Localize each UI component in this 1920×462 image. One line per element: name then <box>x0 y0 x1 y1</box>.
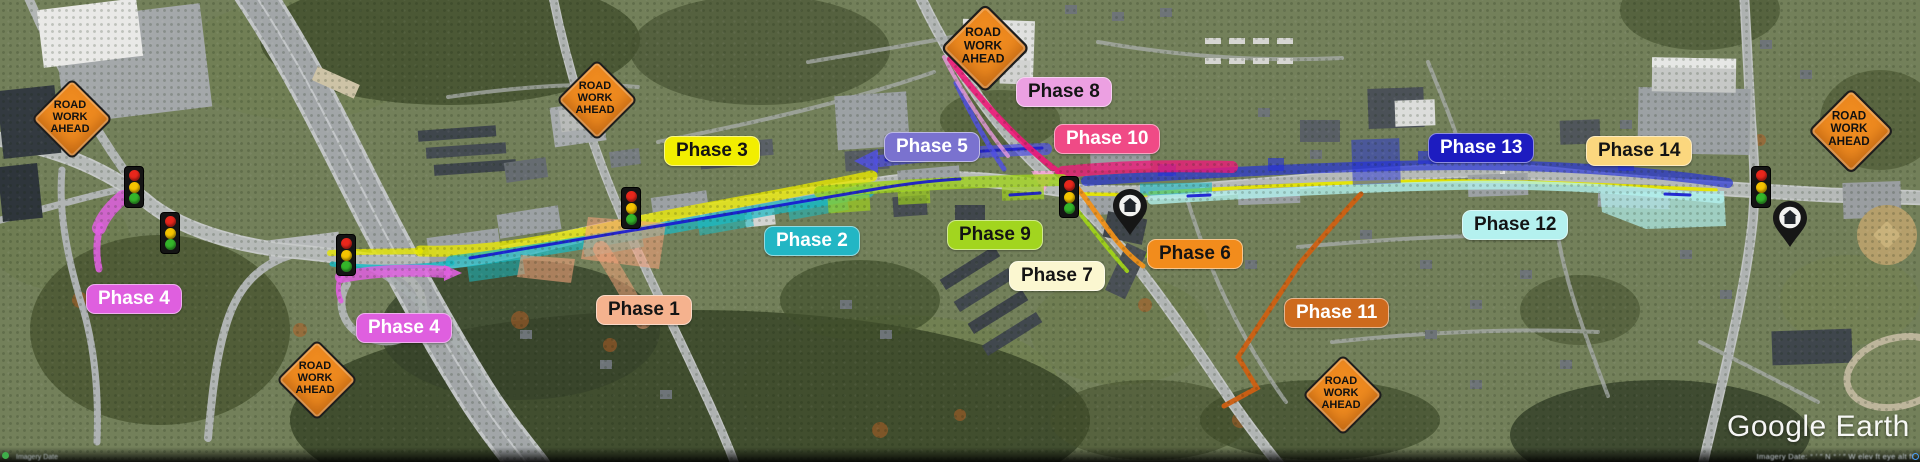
phase-4-label: Phase 4 <box>86 284 182 314</box>
status-bar: Imagery Date Imagery Date: ° ′ ″ N ° ′ ″… <box>0 447 1920 462</box>
sign-text: ROAD WORK AHEAD <box>277 340 353 416</box>
phase-13-label: Phase 13 <box>1428 133 1534 163</box>
sign-text: ROAD WORK AHEAD <box>557 60 633 136</box>
sign-text: ROAD WORK AHEAD <box>1809 89 1890 170</box>
phase-6-label: Phase 6 <box>1147 239 1243 269</box>
red-light <box>165 216 176 227</box>
status-right-text: Imagery Date: ° ′ ″ N ° ′ ″ W elev ft ey… <box>1757 452 1914 461</box>
green-light <box>1756 193 1767 204</box>
yellow-light <box>341 250 352 261</box>
red-light <box>626 191 637 202</box>
red-light <box>1064 180 1075 191</box>
road-work-ahead-sign: ROAD WORK AHEAD <box>557 60 633 136</box>
road-work-ahead-sign: ROAD WORK AHEAD <box>941 4 1025 88</box>
green-light <box>129 193 140 204</box>
phase-9-label: Phase 9 <box>947 220 1043 250</box>
road-work-ahead-sign: ROAD WORK AHEAD <box>32 79 108 155</box>
traffic-light-icon <box>1059 176 1079 218</box>
traffic-light-icon <box>1751 166 1771 208</box>
red-light <box>341 238 352 249</box>
traffic-light-icon <box>124 166 144 208</box>
status-icon <box>2 452 9 459</box>
placemark-pin-icon[interactable] <box>1772 200 1808 248</box>
google-earth-watermark: Google Earth <box>1727 410 1910 444</box>
yellow-light <box>626 203 637 214</box>
phase-4-label: Phase 4 <box>356 313 452 343</box>
green-light <box>1064 203 1075 214</box>
phase-1-label: Phase 1 <box>596 295 692 325</box>
green-light <box>626 214 637 225</box>
phase-12-label: Phase 12 <box>1462 210 1568 240</box>
phase-8-label: Phase 8 <box>1016 77 1112 107</box>
traffic-light-icon <box>336 234 356 276</box>
red-light <box>129 170 140 181</box>
status-left-text: Imagery Date <box>16 454 58 461</box>
sign-text: ROAD WORK AHEAD <box>941 4 1025 88</box>
yellow-light <box>1756 182 1767 193</box>
traffic-light-icon <box>621 187 641 229</box>
phase-5-label: Phase 5 <box>884 132 980 162</box>
phase-7-label: Phase 7 <box>1009 261 1105 291</box>
road-work-ahead-sign: ROAD WORK AHEAD <box>1809 89 1890 170</box>
traffic-light-icon <box>160 212 180 254</box>
green-light <box>341 261 352 272</box>
phase-3-label: Phase 3 <box>664 136 760 166</box>
status-compass-icon <box>1912 453 1919 460</box>
yellow-light <box>129 182 140 193</box>
sign-text: ROAD WORK AHEAD <box>1303 355 1379 431</box>
phase-11-label: Phase 11 <box>1284 298 1389 328</box>
sign-text: ROAD WORK AHEAD <box>32 79 108 155</box>
phase-10-label: Phase 10 <box>1054 124 1160 154</box>
green-light <box>165 239 176 250</box>
google-earth-view[interactable]: ROAD WORK AHEAD ROAD WORK AHEAD ROAD WOR… <box>0 0 1920 462</box>
yellow-light <box>165 228 176 239</box>
phase-14-label: Phase 14 <box>1586 136 1692 166</box>
road-work-ahead-sign: ROAD WORK AHEAD <box>1303 355 1379 431</box>
red-light <box>1756 170 1767 181</box>
placemark-pin-icon[interactable] <box>1112 188 1148 236</box>
road-work-ahead-sign: ROAD WORK AHEAD <box>277 340 353 416</box>
phase-2-label: Phase 2 <box>764 226 860 256</box>
yellow-light <box>1064 192 1075 203</box>
